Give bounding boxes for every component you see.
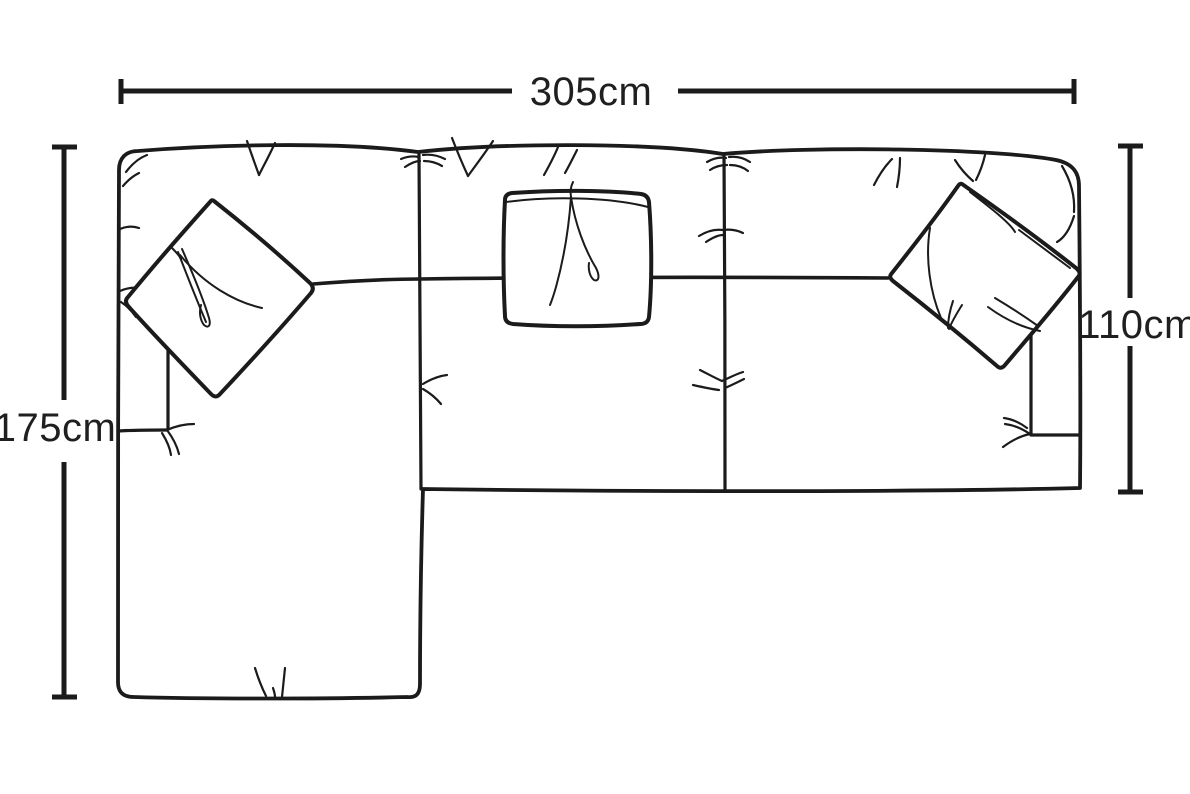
sofa-seam-left: [419, 154, 421, 489]
center-scatter-cushion: [504, 182, 652, 326]
top-dimension: 305cm: [121, 70, 1074, 114]
sofa-body: [118, 138, 1080, 699]
chaise-depth-dimension-label: 175cm: [0, 406, 116, 450]
left-dimension: 175cm: [0, 147, 116, 697]
sofa-seam-right: [724, 155, 725, 489]
sofa-top-view-illustration: 305cm 175cm 110cm: [0, 0, 1190, 794]
right-dimension: 110cm: [1078, 146, 1190, 492]
sofa-depth-dimension-label: 110cm: [1078, 303, 1190, 347]
width-dimension-label: 305cm: [530, 70, 653, 114]
center-cushion-outline: [504, 191, 652, 326]
sofa-dimensions-diagram: 305cm 175cm 110cm: [0, 0, 1190, 794]
